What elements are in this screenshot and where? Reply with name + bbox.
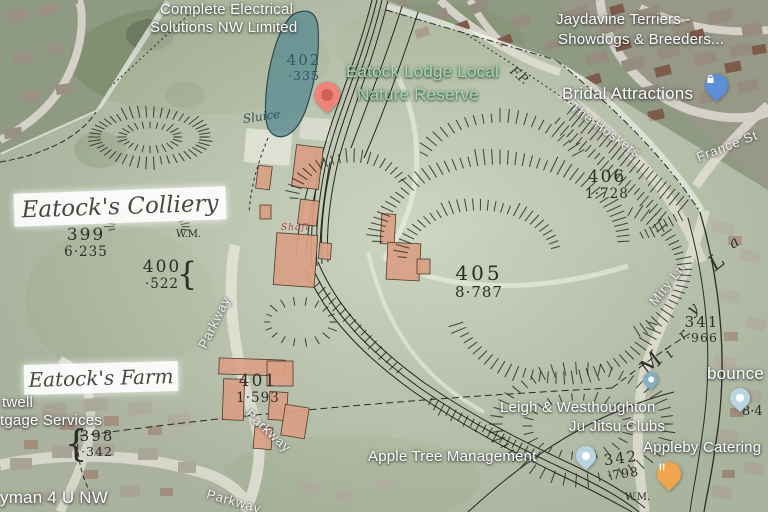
poi-label-handyman[interactable]: yman 4 U NW <box>0 488 108 508</box>
parcel-label-342: 342·798 <box>603 448 642 483</box>
shopping-bag-icon <box>705 74 728 97</box>
poi-label-bounce[interactable]: bounce <box>707 364 764 384</box>
wm-abbrev-label: W.M. <box>176 229 201 240</box>
pin-inner-dot <box>580 450 591 461</box>
poi-label-appleby-catering[interactable]: Appleby Catering <box>643 439 761 456</box>
pin-inner-dot <box>734 392 745 403</box>
wm-abbrev-label: W.M. <box>625 492 650 503</box>
poi-label-apple-tree[interactable]: Apple Tree Management <box>368 448 536 465</box>
poi-label-jaydavine[interactable]: Jaydavine Terriers - <box>556 11 691 28</box>
poi-label-ju-jitsu[interactable]: Leigh & Westhoughton <box>500 399 656 416</box>
poi-label-mortgage-services[interactable]: tgage Services <box>0 412 102 429</box>
restaurant-pin-appleby[interactable] <box>652 457 686 491</box>
parcel-label-405: 4058·787 <box>455 262 503 301</box>
colliery-label: Eatock's Colliery <box>21 190 219 223</box>
poi-label-complete-electrical[interactable]: Solutions NW Limited <box>150 19 297 36</box>
parcel-label-399: 3996·235 <box>64 226 108 260</box>
map-canvas[interactable]: 402·3353996·235400{·5224058·7874061·7284… <box>0 0 768 512</box>
poi-label-bridal-attractions[interactable]: Bridal Attractions <box>562 84 693 104</box>
pin-inner-dot <box>646 375 654 383</box>
poi-label-mortgage-services[interactable]: twell <box>2 394 33 411</box>
fork-knife-icon <box>657 462 681 486</box>
poi-label-jaydavine[interactable]: Showdogs & Breeders... <box>558 31 724 48</box>
poi-label-complete-electrical[interactable]: Complete Electrical <box>160 1 293 18</box>
parcel-label-402: 402·335 <box>287 52 322 82</box>
shopping-pin-bridal[interactable] <box>700 69 733 102</box>
pin-inner-dot <box>319 87 336 104</box>
historic-label-band-farm: Eatock's Farm <box>24 361 179 395</box>
shaft-label: Shaft <box>281 223 310 233</box>
parcel-label-398: {398·342 <box>80 428 115 458</box>
parcel-label-401: 4011·593 <box>236 372 280 406</box>
parcel-label-400: 400{·522 <box>143 258 181 292</box>
parcel-label-406: 4061·728 <box>585 168 629 202</box>
poi-label-nature-reserve[interactable]: Nature Reserve <box>357 85 479 105</box>
poi-label-nature-reserve[interactable]: Eatock Lodge Local <box>346 62 499 82</box>
farm-label: Eatock's Farm <box>28 364 174 392</box>
poi-label-ju-jitsu[interactable]: Ju Jitsu Clubs <box>569 418 665 435</box>
